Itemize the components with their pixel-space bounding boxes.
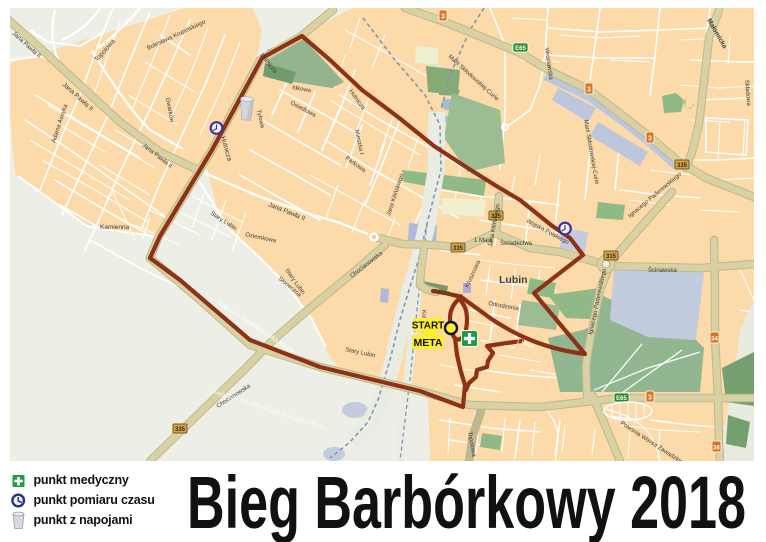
svg-text:START: START (412, 321, 445, 332)
svg-text:36: 36 (713, 446, 720, 452)
svg-text:335: 335 (677, 163, 688, 169)
svg-text:Kamienna: Kamienna (100, 224, 130, 231)
svg-text:Świadectwa: Świadectwa (500, 239, 533, 247)
svg-text:3: 3 (648, 136, 652, 143)
svg-text:E65: E65 (616, 396, 627, 402)
svg-text:META: META (414, 337, 443, 349)
svg-text:Lubin: Lubin (499, 274, 528, 286)
svg-text:3: 3 (587, 87, 591, 94)
svg-text:punkt medyczny: punkt medyczny (34, 473, 129, 487)
svg-text:Bieg Barbórkowy 2018: Bieg Barbórkowy 2018 (187, 461, 746, 542)
svg-text:punkt pomiaru czasu: punkt pomiaru czasu (34, 493, 155, 507)
svg-text:E65: E65 (515, 46, 526, 52)
svg-text:punkt z napojami: punkt z napojami (34, 513, 133, 527)
svg-text:3: 3 (441, 14, 445, 21)
svg-text:315: 315 (606, 254, 617, 260)
svg-text:34: 34 (711, 337, 718, 343)
svg-text:335: 335 (453, 246, 464, 252)
svg-text:3: 3 (648, 395, 652, 402)
svg-text:Ścinawska: Ścinawska (648, 266, 677, 274)
svg-text:1 Maja: 1 Maja (474, 238, 493, 244)
svg-text:335: 335 (175, 427, 186, 433)
